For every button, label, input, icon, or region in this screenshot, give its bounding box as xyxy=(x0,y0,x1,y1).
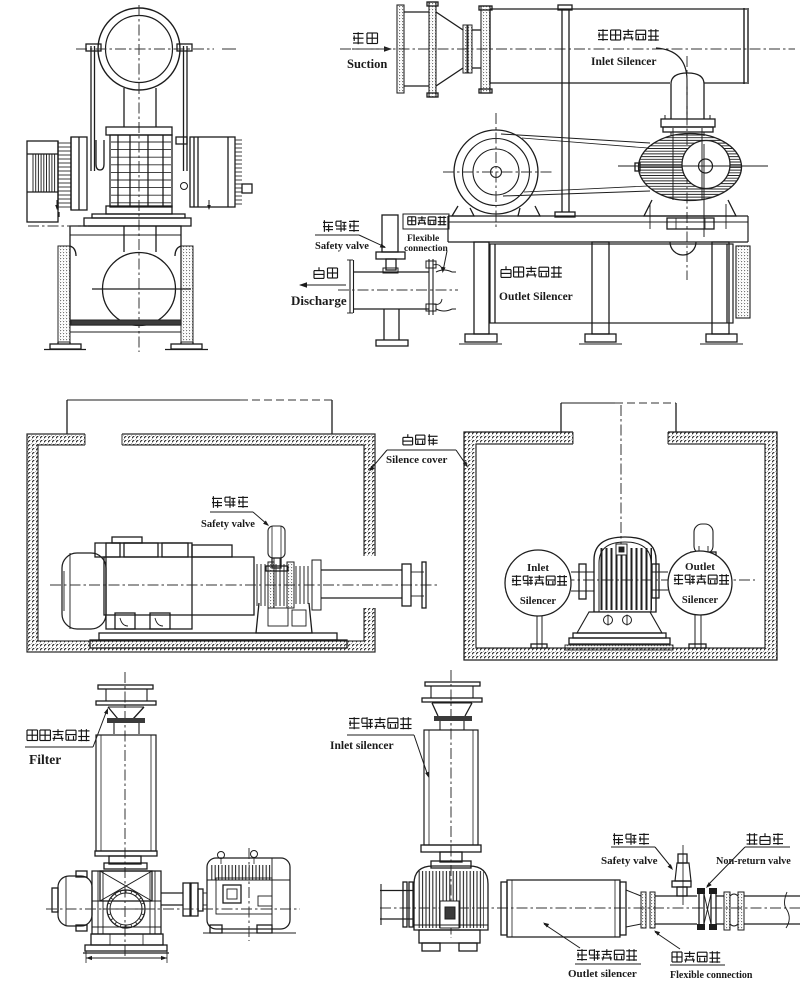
svg-text:Suction: Suction xyxy=(347,57,387,71)
svg-text:Silence cover: Silence cover xyxy=(386,454,448,466)
svg-text:Outlet Silencer: Outlet Silencer xyxy=(499,291,573,303)
svg-text:Safety valve: Safety valve xyxy=(201,519,255,530)
svg-text:Silencer: Silencer xyxy=(682,595,718,606)
svg-text:Safety valve: Safety valve xyxy=(315,241,369,252)
svg-text:Silencer: Silencer xyxy=(520,596,556,607)
svg-text:Flexible connection: Flexible connection xyxy=(670,970,753,981)
svg-text:Safety valve: Safety valve xyxy=(601,855,658,867)
svg-text:Inlet: Inlet xyxy=(527,562,549,574)
svg-text:Discharge: Discharge xyxy=(291,293,347,308)
svg-text:Filter: Filter xyxy=(29,752,61,767)
svg-text:Outlet: Outlet xyxy=(685,561,715,573)
svg-text:Inlet silencer: Inlet silencer xyxy=(330,740,394,752)
svg-text:Inlet Silencer: Inlet Silencer xyxy=(591,56,656,68)
svg-text:connection: connection xyxy=(404,244,449,254)
svg-text:Outlet silencer: Outlet silencer xyxy=(568,968,637,980)
svg-text:Flexible: Flexible xyxy=(407,234,439,244)
